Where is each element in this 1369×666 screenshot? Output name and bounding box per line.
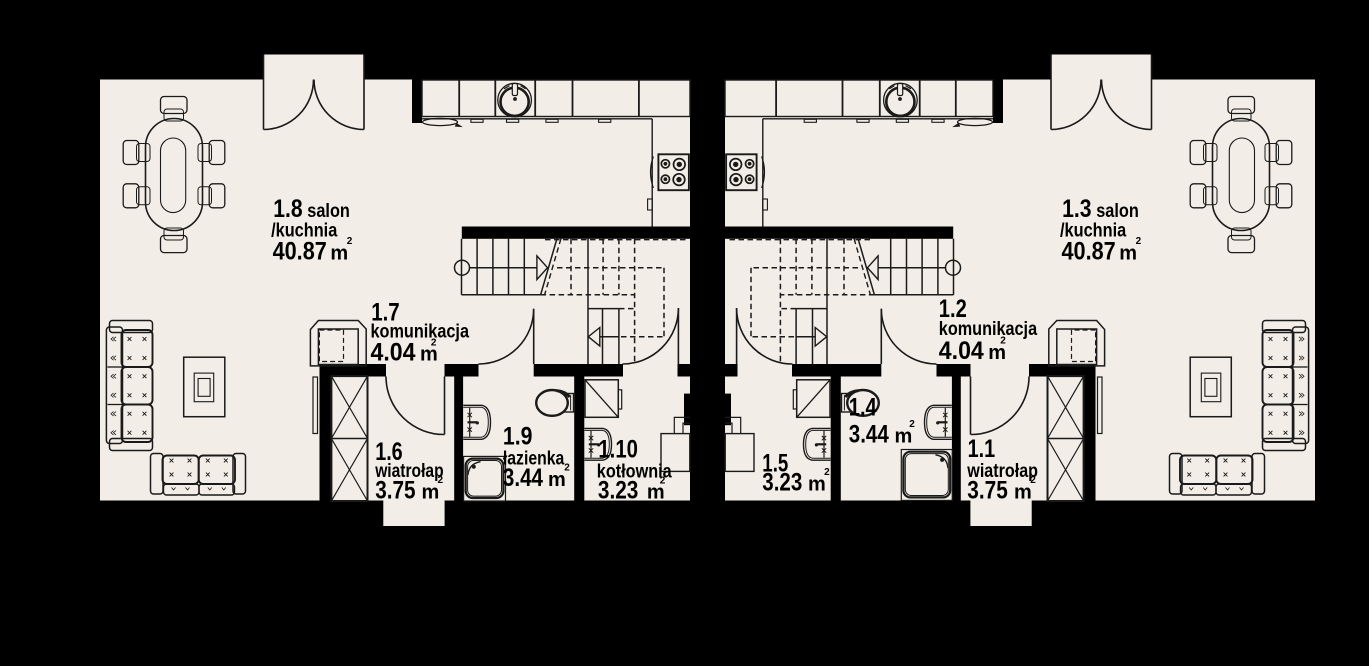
svg-text:3.75: 3.75	[967, 477, 1008, 505]
svg-text:40.87: 40.87	[1062, 237, 1116, 265]
svg-text:m: m	[1014, 482, 1032, 504]
svg-text:4.04: 4.04	[939, 337, 984, 365]
svg-text:1.4: 1.4	[849, 394, 877, 422]
svg-text:2: 2	[347, 236, 353, 247]
svg-text:2: 2	[660, 475, 666, 486]
svg-text:2: 2	[438, 475, 444, 486]
svg-text:m: m	[330, 242, 348, 264]
svg-text:40.87: 40.87	[273, 237, 327, 265]
svg-text:1.9: 1.9	[503, 423, 533, 451]
svg-text:2: 2	[1000, 336, 1006, 347]
svg-text:2: 2	[564, 463, 570, 474]
svg-text:1.1: 1.1	[968, 435, 996, 463]
svg-text:3.44: 3.44	[503, 464, 543, 492]
svg-text:3.23: 3.23	[762, 469, 802, 497]
svg-text:3.75: 3.75	[375, 477, 415, 505]
svg-text:2: 2	[431, 337, 437, 348]
svg-text:3.44: 3.44	[849, 421, 889, 449]
svg-text:m: m	[548, 469, 566, 491]
svg-text:2: 2	[824, 467, 830, 478]
svg-text:2: 2	[1136, 236, 1142, 247]
svg-text:3.23: 3.23	[598, 477, 639, 505]
svg-text:m: m	[1119, 242, 1137, 264]
svg-text:2: 2	[1030, 475, 1036, 486]
svg-text:4.04: 4.04	[371, 339, 416, 367]
svg-text:2: 2	[909, 419, 915, 430]
